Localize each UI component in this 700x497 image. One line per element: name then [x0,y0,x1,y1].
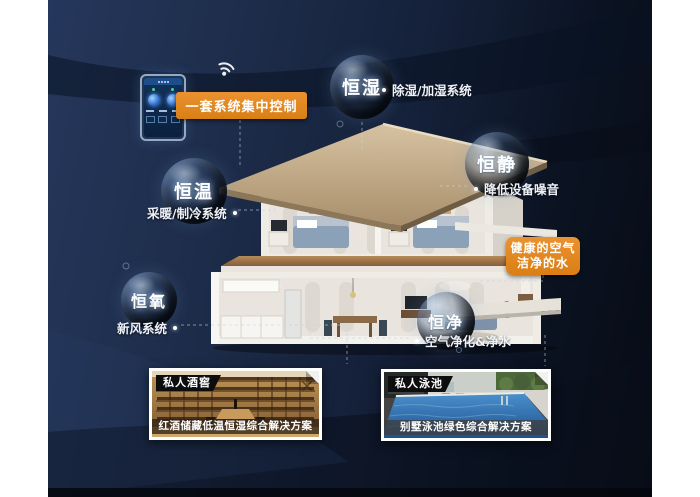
highlight-line2: 洁净的水 [517,256,569,271]
bubble-label: 恒静 [477,151,517,177]
feature-text: 降低设备噪音 [484,179,559,198]
highlight-line1: 健康的空气 [510,241,575,256]
artwork-background: 一套系统集中控制 恒湿 恒静 恒温 恒氧 恒净 除湿/加湿系统 降低设备噪音 采… [48,0,652,497]
bubble-label: 恒氧 [131,288,167,312]
pool-badge: 私人泳池 [388,376,453,392]
bullet-dot-icon [415,339,419,343]
feature-text: 除湿/加湿系统 [392,80,472,99]
pool-caption: 别墅泳池绿色综合解决方案 [384,420,548,435]
bullet-dot-icon [474,187,478,191]
infographic-canvas: 一套系统集中控制 恒湿 恒静 恒温 恒氧 恒净 除湿/加湿系统 降低设备噪音 采… [0,0,700,497]
feature-text: 空气净化&净水 [425,331,511,350]
phone-status-leds [144,88,182,91]
bubble-label: 恒温 [174,178,214,204]
feature-heating-cooling: 采暖/制冷系统 [147,203,237,222]
phone-app-header [144,78,182,85]
central-control-label: 一套系统集中控制 [176,92,307,119]
folded-corner-icon [535,372,548,385]
feature-air-water-purification: 空气净化&净水 [415,331,511,350]
folded-corner-icon [306,371,319,384]
dial-icon [148,94,160,106]
feature-noise-reduction: 降低设备噪音 [474,179,559,198]
feature-dehumidify-humidify: 除湿/加湿系统 [382,80,472,99]
healthy-air-clean-water-box: 健康的空气 洁净的水 [506,237,580,275]
bullet-dot-icon [173,326,177,330]
feature-text: 新风系统 [117,318,167,337]
bullet-dot-icon [382,88,386,92]
feature-fresh-air: 新风系统 [117,318,177,337]
bubble-label: 恒湿 [342,74,382,100]
bullet-dot-icon [233,211,237,215]
wine-cellar-caption: 红酒储藏低温恒湿综合解决方案 [152,419,319,434]
wine-cellar-photo-card: 私人酒窖 红酒储藏低温恒湿综合解决方案 [149,368,322,440]
pool-photo-card: 私人泳池 别墅泳池绿色综合解决方案 [381,369,551,441]
wine-cellar-badge: 私人酒窖 [156,375,221,391]
bubble-label: 恒净 [428,309,464,333]
feature-text: 采暖/制冷系统 [147,203,227,222]
